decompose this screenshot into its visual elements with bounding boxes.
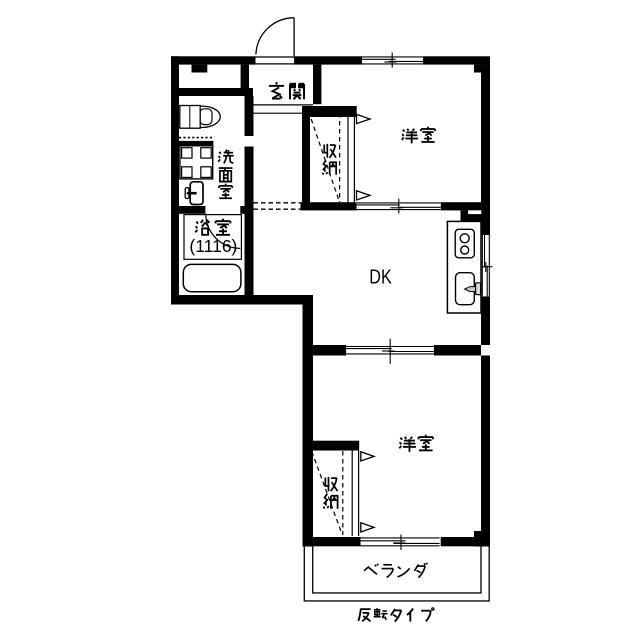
svg-text:DK: DK (369, 267, 392, 289)
svg-text:(1116): (1116) (189, 236, 237, 256)
